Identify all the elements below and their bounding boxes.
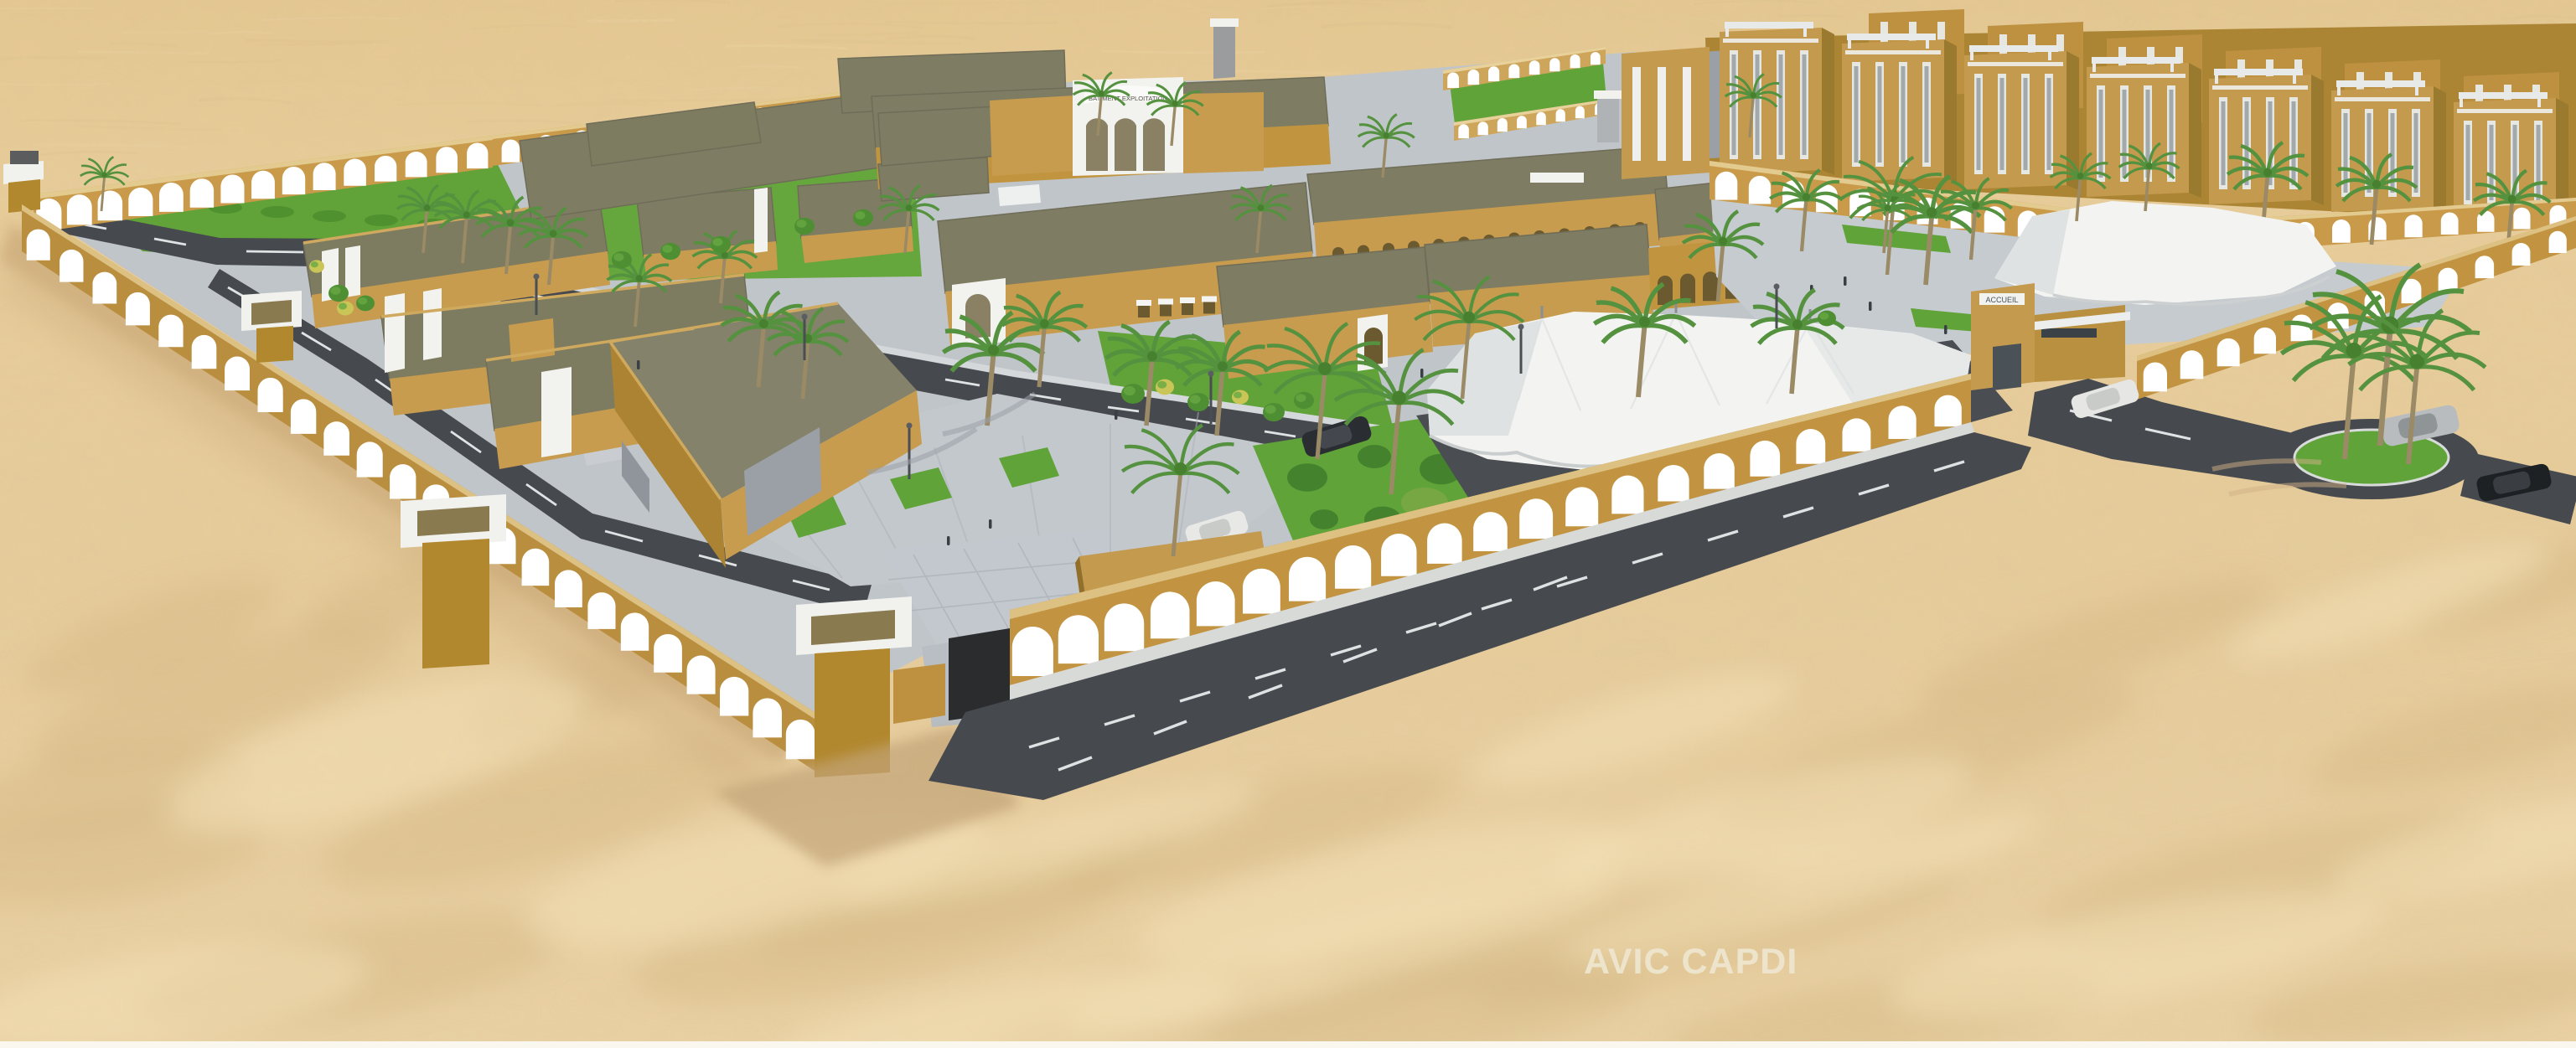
svg-text:AVIC CAPDI: AVIC CAPDI <box>1584 942 1798 982</box>
svg-text:ACCUEIL: ACCUEIL <box>1985 296 2018 304</box>
